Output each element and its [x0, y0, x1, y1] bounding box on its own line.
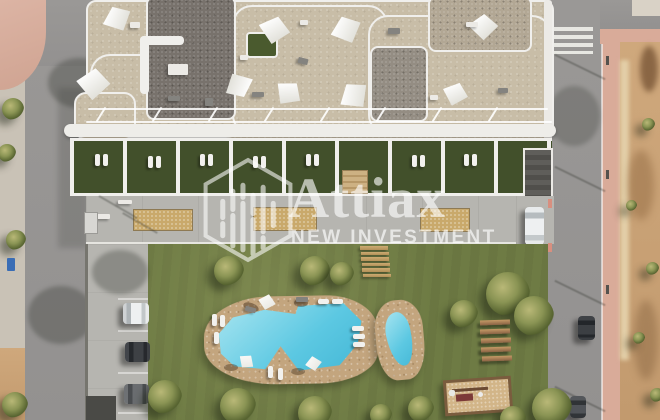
- streetlight-pole: [606, 285, 609, 294]
- pink-curb-mark: [548, 243, 552, 252]
- parapet-detail: [140, 36, 149, 94]
- umbrella-shadow: [291, 368, 305, 375]
- car: [123, 303, 149, 324]
- roof-furniture: [388, 28, 400, 34]
- shrub: [650, 388, 660, 402]
- shrub: [626, 200, 637, 211]
- parking-bay-line: [118, 298, 148, 300]
- tree: [300, 256, 330, 286]
- garden-bench: [481, 346, 511, 352]
- road-curb: [601, 44, 603, 420]
- bush: [532, 388, 572, 420]
- wood-plank-path: [363, 274, 391, 278]
- gravel-roof: [146, 0, 236, 120]
- pool-lounger: [296, 297, 308, 302]
- pool-lounger: [332, 299, 343, 304]
- roof-furniture: [300, 20, 308, 25]
- bush: [338, 400, 364, 420]
- terrace-loungers: [103, 154, 108, 166]
- pool-lounger: [214, 332, 219, 344]
- garden-bench: [480, 319, 510, 325]
- parking-bay-line: [118, 412, 148, 414]
- terrace-loungers: [95, 154, 100, 166]
- tree: [2, 326, 24, 348]
- street-sign: [7, 258, 15, 271]
- terrace-loungers: [156, 156, 161, 168]
- roof-furniture: [498, 88, 508, 93]
- walkway-bench: [118, 200, 132, 204]
- top-right-tiles: [632, 0, 660, 16]
- bush: [184, 396, 214, 420]
- palm-tree: [148, 300, 188, 340]
- terrace-loungers: [306, 154, 311, 166]
- utility-shed: [86, 396, 116, 420]
- pool-lounger: [268, 366, 273, 378]
- pool-lounger: [353, 334, 365, 339]
- tree: [6, 230, 26, 250]
- crosswalk: [553, 27, 593, 54]
- car: [570, 396, 586, 418]
- right-sidewalk: [602, 42, 622, 420]
- watermark-brand: Attiax: [288, 170, 446, 227]
- tree: [2, 98, 24, 120]
- garden-bench: [480, 328, 510, 334]
- tree: [330, 262, 354, 286]
- garden-bench: [482, 355, 512, 361]
- tree-shadow: [548, 86, 600, 146]
- car: [525, 207, 544, 245]
- palm-tree: [112, 258, 146, 292]
- shrub: [633, 332, 645, 344]
- streetlight-pole: [606, 56, 609, 65]
- walkway-rail: [88, 108, 548, 110]
- roof-furniture: [205, 98, 213, 106]
- playground-equipment: [456, 393, 473, 401]
- gravel-roof: [370, 46, 428, 122]
- sand-dark-patch: [640, 46, 658, 92]
- wood-plank-path: [361, 257, 389, 261]
- shrub: [646, 262, 659, 275]
- garden-bench: [481, 337, 511, 343]
- roof-furniture: [130, 22, 140, 28]
- terrace-loungers: [314, 154, 319, 166]
- palm-tree: [240, 260, 280, 300]
- shrub: [642, 118, 655, 131]
- umbrella-shadow: [224, 364, 238, 371]
- walkway-planter: [133, 209, 193, 231]
- pool-lounger: [352, 326, 364, 331]
- terrace-loungers: [472, 154, 477, 166]
- terrace-loungers: [148, 156, 153, 168]
- pool-lounger: [220, 315, 225, 327]
- bush: [148, 380, 182, 414]
- walkway-storage: [84, 212, 98, 234]
- tree: [450, 300, 478, 328]
- aerial-render: Attiax NEW INVESTMENT: [0, 0, 660, 420]
- parapet-band: [64, 124, 556, 137]
- watermark-tagline: NEW INVESTMENT: [291, 227, 497, 249]
- pool-lounger: [318, 299, 329, 304]
- attiax-hexagon-logo: [202, 157, 294, 263]
- pink-curb-mark: [548, 199, 552, 208]
- bush: [370, 404, 392, 420]
- pool-lounger: [278, 368, 283, 380]
- playground-equipment: [449, 390, 455, 396]
- wood-plank-path: [361, 252, 389, 256]
- wood-plank-path: [362, 263, 390, 267]
- ac-unit: [168, 64, 188, 75]
- terrace-loungers: [464, 154, 469, 166]
- pool-lounger: [212, 314, 217, 326]
- parking-wall: [85, 244, 88, 420]
- roof-furniture: [430, 95, 438, 100]
- playground-equipment: [478, 392, 483, 397]
- roof-furniture: [252, 92, 264, 97]
- terrace-loungers: [420, 155, 425, 167]
- tree: [514, 296, 554, 336]
- parking-bay-line: [118, 330, 148, 332]
- wood-plank-path: [362, 268, 390, 272]
- roof-furniture: [466, 22, 478, 27]
- roof-furniture: [168, 96, 180, 101]
- rooftop-terrace-block: [232, 5, 388, 135]
- car: [124, 384, 149, 404]
- terrace-loungers: [412, 155, 417, 167]
- pool-lounger: [353, 342, 365, 347]
- bush: [220, 388, 256, 420]
- roof-furniture: [240, 55, 248, 60]
- car: [125, 342, 150, 362]
- tree: [2, 392, 28, 418]
- streetlight-pole: [606, 170, 609, 179]
- car: [578, 316, 595, 340]
- parking-bay-line: [118, 372, 148, 374]
